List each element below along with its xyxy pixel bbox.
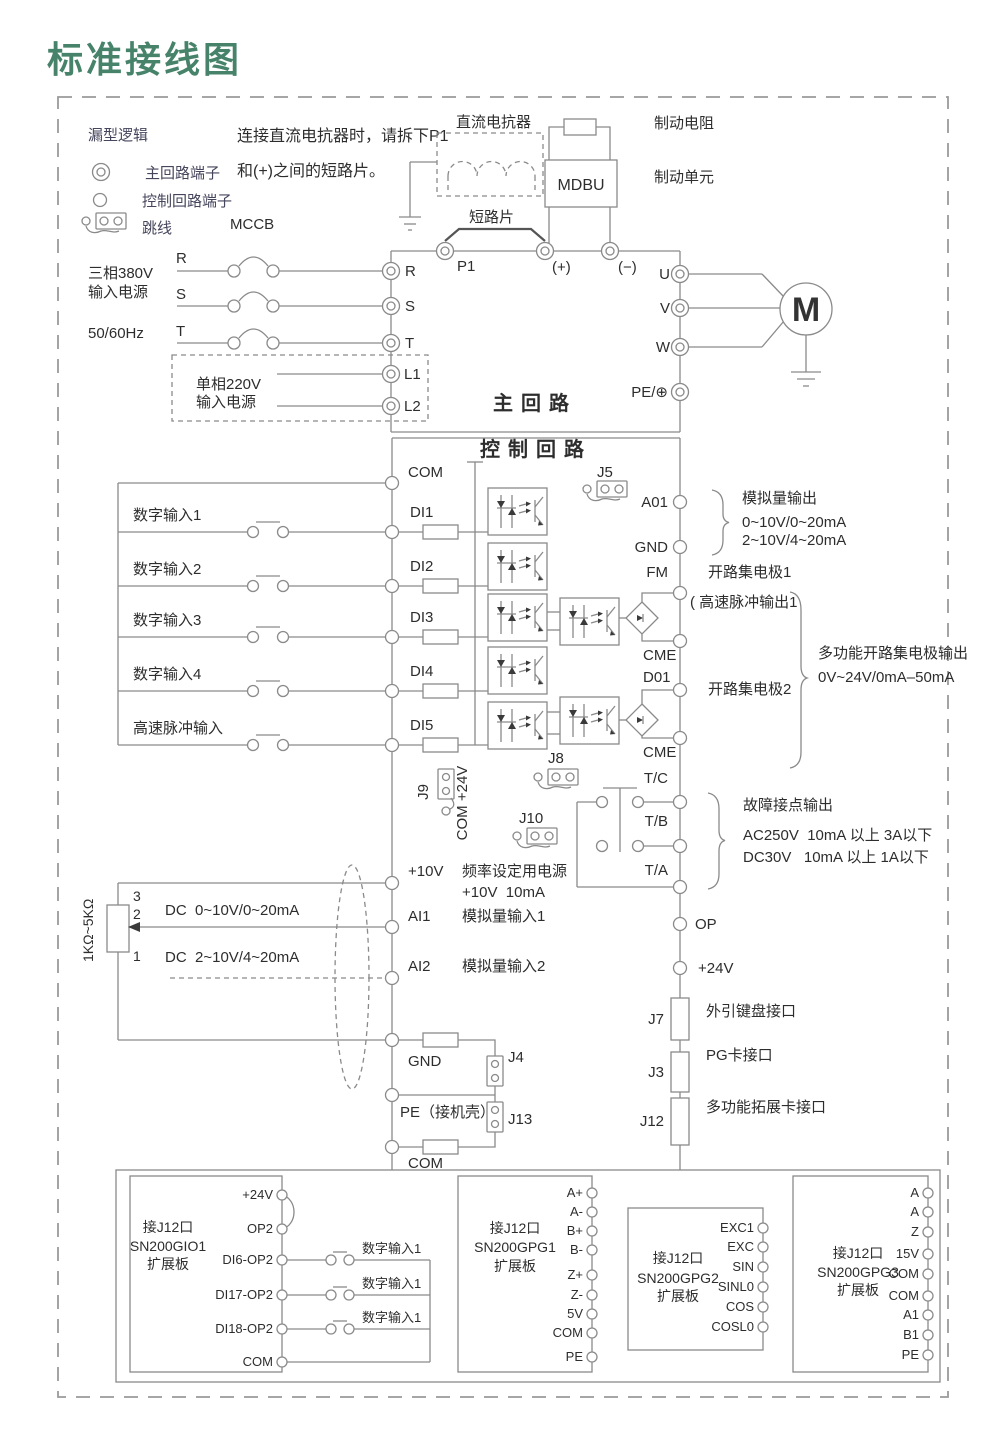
ai1-label: AI1: [408, 908, 431, 925]
terminal-r: [383, 263, 400, 280]
terminal-v: [672, 300, 689, 317]
brace-multi-oc: [790, 592, 807, 768]
di1-label: DI1: [410, 504, 433, 521]
gpg3-t1: A: [910, 1204, 919, 1219]
plus-label: (+): [552, 259, 571, 276]
di-row-4: 数字输入4 DI4: [118, 663, 488, 698]
gpg2-t5: COSL0: [711, 1319, 754, 1334]
output-opto-d01: [560, 697, 619, 744]
board-gpg1: 接J12口 SN200GPG1 扩展板 A+ A- B+ B- Z+ Z- 5V…: [458, 1176, 597, 1372]
analog-out-title: 模拟量输出: [742, 490, 817, 507]
main-circuit: 主回路 直流电抗器 短路片 MDBU 制动电阻 制动单元 P1 (+) (−) …: [383, 114, 833, 432]
terminal-ai2: [386, 972, 399, 985]
gpg1-t2: B+: [567, 1223, 583, 1238]
terminal-d01: [674, 684, 687, 697]
fault-dc-spec: DC30V 10mA 以上 1A以下: [743, 849, 929, 866]
board-gpg2: 接J12口 SN200GPG2 扩展板 EXC1 EXC SIN SINL0 C…: [628, 1208, 768, 1350]
phase-r-label: R: [176, 250, 187, 267]
pulse-out-label: ( 高速脉冲输出1: [690, 594, 798, 611]
gpg1-t7: COM: [553, 1325, 583, 1340]
terminal-a01: [674, 496, 687, 509]
jumper-j9: [438, 769, 454, 799]
optocoupler-di4: [488, 647, 547, 694]
terminal-l1: [383, 366, 400, 383]
phase-t-label: T: [176, 323, 185, 340]
expansion-port-label: 多功能拓展卡接口: [706, 1099, 826, 1116]
a01-label: A01: [641, 494, 668, 511]
gpg3-t8: PE: [902, 1347, 920, 1362]
j3-label: J3: [648, 1064, 664, 1081]
control-circuit: 控制回路 COM 数字输入1 DI1 数字输入2 DI2 数字输入3 DI: [80, 437, 826, 1172]
gpg2-line2: SN200GPG2: [637, 1270, 719, 1286]
multi-oc-label2: 0V~24V/0mA–50mA: [818, 669, 954, 686]
pe-ctl-label: PE（接机壳）: [400, 1104, 495, 1121]
terminal-p10: [386, 877, 399, 890]
gpg1-t8: PE: [566, 1349, 584, 1364]
tc-label: T/C: [644, 770, 668, 787]
legend-main-terminal: 主回路端子: [145, 165, 220, 182]
gpg2-t3: SINL0: [718, 1279, 754, 1294]
gio1-t2: DI6-OP2: [222, 1252, 273, 1267]
gpg1-line1: 接J12口: [490, 1220, 541, 1236]
jumper-j13: [487, 1102, 503, 1132]
j7-label: J7: [648, 1011, 664, 1028]
pot-range-label: 1KΩ~5KΩ: [80, 899, 96, 962]
terminal-di2: [386, 580, 399, 593]
dc-reactor-label: 直流电抗器: [456, 114, 531, 131]
w-label: W: [656, 339, 671, 356]
freq-supply-label: 频率设定用电源: [462, 863, 567, 880]
fm-label: FM: [646, 564, 668, 581]
board-gio1: 接J12口 SN200GIO1 扩展板 +24V OP2 DI6-OP2 DI1…: [130, 1176, 430, 1372]
terminal-l2-label: L2: [404, 398, 421, 415]
expansion-boards: 接J12口 SN200GIO1 扩展板 +24V OP2 DI6-OP2 DI1…: [116, 1170, 940, 1382]
gpg3-t2: Z: [911, 1224, 919, 1239]
multi-oc-label1: 多功能开路集电极输出: [818, 645, 968, 662]
gio1-t4: DI18-OP2: [215, 1321, 273, 1336]
short-bar: [445, 229, 545, 241]
terminal-cme2: [674, 732, 687, 745]
legend: 漏型逻辑 主回路端子 控制回路端子 跳线: [82, 127, 232, 237]
terminal-l1-label: L1: [404, 366, 421, 383]
oc1-label: 开路集电极1: [708, 564, 791, 581]
freq-label: 50/60Hz: [88, 325, 144, 342]
j13-label: J13: [508, 1111, 532, 1128]
gpg2-line1: 接J12口: [653, 1250, 704, 1266]
analog-out-range2: 2~10V/4~20mA: [742, 532, 846, 549]
breaker-r: [239, 257, 268, 266]
gio1-t3: DI17-OP2: [215, 1287, 273, 1302]
ground-icon: [399, 217, 421, 230]
gpg1-t5: Z-: [571, 1287, 583, 1302]
terminal-w: [672, 339, 689, 356]
control-circuit-label: 控制回路: [480, 437, 592, 461]
legend-jumper: 跳线: [142, 220, 172, 237]
mdbu-label: MDBU: [557, 177, 604, 194]
note-line1: 连接直流电抗器时，请拆下P1: [237, 127, 449, 145]
gpg1-t0: A+: [567, 1185, 583, 1200]
din5-label: 高速脉冲输入: [133, 720, 223, 737]
j12-label: J12: [640, 1113, 664, 1130]
potentiometer: [107, 905, 129, 952]
optocoupler-di2: [488, 543, 547, 590]
terminal-tb: [674, 840, 687, 853]
board-gpg3: 接J12口 SN200GPG3 扩展板 A A Z 15V COM COM A1…: [793, 1176, 933, 1372]
di2-label: DI2: [410, 558, 433, 575]
din2-label: 数字输入2: [133, 561, 201, 578]
gio1-t0: +24V: [242, 1187, 273, 1202]
terminal-t: [383, 335, 400, 352]
legend-control-terminal: 控制回路端子: [142, 193, 232, 210]
terminal-pe: [672, 384, 689, 401]
terminal-gnd-out: [674, 541, 687, 554]
di-row-5: 高速脉冲输入 DI5: [118, 717, 488, 752]
p10-label: +10V: [408, 863, 443, 880]
terminal-di4: [386, 685, 399, 698]
short-bar-label: 短路片: [469, 209, 514, 226]
cme1-label: CME: [643, 647, 676, 664]
oc2-label: 开路集电极2: [708, 681, 791, 698]
output-opto-fm: [560, 598, 619, 645]
gpg3-t0: A: [910, 1185, 919, 1200]
gpg3-line2: SN200GPG3: [817, 1264, 899, 1280]
terminal-di3: [386, 631, 399, 644]
mccb-label: MCCB: [230, 216, 274, 233]
di5-label: DI5: [410, 717, 433, 734]
optocoupler-di3: [488, 594, 547, 641]
single-phase-label2: 输入电源: [196, 394, 256, 411]
legend-heading: 漏型逻辑: [88, 127, 148, 144]
breaker-t: [239, 329, 268, 338]
terminal-p24: [674, 962, 687, 975]
freq-supply-spec: +10V 10mA: [462, 884, 545, 901]
fault-ac-spec: AC250V 10mA 以上 3A以下: [743, 827, 932, 844]
shield-ellipse: [335, 865, 369, 1089]
gpg3-t6: A1: [903, 1307, 919, 1322]
terminal-r-label: R: [405, 263, 416, 280]
connector-j12: [671, 1098, 689, 1145]
brake-unit-label: 制动单元: [654, 169, 714, 186]
pot-pin2: 2: [133, 906, 141, 922]
j5-label: J5: [597, 464, 613, 481]
pot-pin3: 3: [133, 888, 141, 904]
gio1-sw0-label: 数字输入1: [362, 1241, 421, 1256]
page-title: 标准接线图: [47, 39, 242, 80]
op-label: OP: [695, 916, 717, 933]
jumper-j10: [513, 828, 557, 848]
di4-label: DI4: [410, 663, 433, 680]
gpg3-t3: 15V: [896, 1246, 919, 1261]
power-input: 三相380V 输入电源 50/60Hz MCCB R S T 单相220V 输入…: [88, 216, 428, 421]
terminal-com2: [386, 1141, 399, 1154]
ai2-label: AI2: [408, 958, 431, 975]
j9-select-label: COM +24V: [454, 766, 471, 841]
three-phase-label2: 输入电源: [88, 284, 148, 301]
gio1-line2: SN200GIO1: [130, 1238, 206, 1254]
gpg3-line1: 接J12口: [833, 1245, 884, 1261]
cme2-label: CME: [643, 744, 676, 761]
d01-label: D01: [643, 669, 671, 686]
terminal-plus: [537, 243, 554, 260]
gnd-out-label: GND: [635, 539, 669, 556]
terminal-ta: [674, 881, 687, 894]
motor-ground-icon: [791, 372, 821, 386]
tb-label: T/B: [645, 813, 668, 830]
pg-port-label: PG卡接口: [706, 1047, 773, 1064]
terminal-gnd: [386, 1034, 399, 1047]
gio1-sw1-label: 数字输入1: [362, 1276, 421, 1291]
terminal-op: [674, 918, 687, 931]
p24-label: +24V: [698, 960, 733, 977]
p1-label: P1: [457, 258, 475, 275]
terminal-pe-ctl: [386, 1089, 399, 1102]
u-label: U: [659, 266, 670, 283]
ai1-desc: 模拟量输入1: [462, 908, 545, 925]
gpg1-t6: 5V: [567, 1306, 583, 1321]
terminal-s-label: S: [405, 298, 415, 315]
gpg2-line3: 扩展板: [657, 1288, 699, 1304]
gpg2-t2: SIN: [732, 1259, 754, 1274]
terminal-ai1: [386, 921, 399, 934]
connector-j7: [671, 998, 689, 1040]
gpg2-t0: EXC1: [720, 1220, 754, 1235]
jumper-icon: [82, 213, 126, 233]
single-phase-label1: 单相220V: [196, 376, 261, 393]
pot-pin1: 1: [133, 948, 141, 964]
gpg2-t4: COS: [726, 1299, 755, 1314]
gpg2-t1: EXC: [727, 1239, 754, 1254]
terminal-fm: [674, 587, 687, 600]
gpg1-t4: Z+: [567, 1267, 583, 1282]
keyboard-port-label: 外引键盘接口: [706, 1002, 796, 1020]
note: 连接直流电抗器时，请拆下P1 和(+)之间的短路片。: [237, 127, 449, 180]
gpg3-line3: 扩展板: [837, 1282, 879, 1298]
note-line2: 和(+)之间的短路片。: [237, 162, 385, 180]
ta-label: T/A: [645, 862, 668, 879]
gio1-box: [130, 1176, 282, 1372]
terminal-di1: [386, 526, 399, 539]
phase-s-label: S: [176, 286, 186, 303]
wiper-arrow: [128, 922, 140, 932]
reactor-coil: [448, 162, 535, 177]
gpg1-line2: SN200GPG1: [474, 1239, 556, 1255]
analog-out-range1: 0~10V/0~20mA: [742, 514, 846, 531]
three-phase-label1: 三相380V: [88, 265, 153, 282]
breaker-s: [239, 292, 268, 301]
gpg3-t4: COM: [889, 1266, 919, 1281]
main-terminal-icon: [93, 164, 110, 181]
ai2-desc: 模拟量输入2: [462, 958, 545, 975]
terminal-com: [386, 477, 399, 490]
gpg1-t1: A-: [570, 1204, 583, 1219]
standard-wiring-diagram: 标准接线图 漏型逻辑 主回路端子 控制回路端子 跳线 连接直流电抗器时，请拆下P…: [0, 0, 1000, 1452]
gio1-line1: 接J12口: [143, 1219, 194, 1235]
gnd-label: GND: [408, 1053, 442, 1070]
gio1-t1: OP2: [247, 1221, 273, 1236]
fault-title: 故障接点输出: [743, 796, 833, 814]
di-row-1: 数字输入1 DI1: [118, 504, 488, 539]
din3-label: 数字输入3: [133, 612, 201, 629]
minus-label: (−): [618, 259, 637, 276]
gpg1-t3: B-: [570, 1242, 583, 1257]
di-row-2: 数字输入2 DI2: [118, 558, 488, 593]
terminal-di5: [386, 739, 399, 752]
gpg1-line3: 扩展板: [494, 1258, 536, 1274]
terminal-cme1: [674, 635, 687, 648]
dc2-label: DC 2~10V/4~20mA: [165, 949, 299, 966]
di3-label: DI3: [410, 609, 433, 626]
terminal-t-label: T: [405, 335, 414, 352]
j4-label: J4: [508, 1049, 524, 1066]
v-label: V: [660, 300, 670, 317]
terminal-l2: [383, 398, 400, 415]
j9-label: J9: [415, 784, 432, 800]
terminal-u: [672, 266, 689, 283]
connector-j3: [671, 1052, 689, 1092]
motor-letter: M: [792, 291, 820, 329]
terminal-tc: [674, 796, 687, 809]
gio1-sw2-label: 数字输入1: [362, 1310, 421, 1325]
j8-label: J8: [548, 750, 564, 767]
gio1-line3: 扩展板: [147, 1256, 189, 1272]
main-circuit-label: 主回路: [493, 391, 577, 415]
jumper-j8: [534, 769, 578, 789]
optocoupler-di5: [488, 702, 547, 749]
j10-label: J10: [519, 810, 543, 827]
brake-resistor-label: 制动电阻: [654, 115, 714, 132]
com-label: COM: [408, 464, 443, 481]
gio1-t5: COM: [243, 1354, 273, 1369]
brake-resistor: [564, 119, 596, 135]
dc1-label: DC 0~10V/0~20mA: [165, 902, 299, 919]
optocoupler-di1: [488, 488, 547, 535]
di-row-3: 数字输入3 DI3: [118, 609, 488, 644]
brace-analog: [712, 490, 729, 555]
brace-fault: [708, 793, 725, 889]
terminal-s: [383, 298, 400, 315]
din1-label: 数字输入1: [133, 507, 201, 524]
pe-label: PE/⊕: [631, 384, 668, 401]
control-terminal-icon: [94, 194, 107, 207]
jumper-j4: [487, 1056, 503, 1086]
terminal-p1: [437, 243, 454, 260]
annotations: 模拟量输出 0~10V/0~20mA 2~10V/4~20mA 开路集电极1 (…: [690, 490, 968, 889]
gpg3-t5: COM: [889, 1288, 919, 1303]
din4-label: 数字输入4: [133, 666, 201, 683]
gpg3-t7: B1: [903, 1327, 919, 1342]
jumper-j5: [583, 481, 627, 501]
terminal-minus: [602, 243, 619, 260]
